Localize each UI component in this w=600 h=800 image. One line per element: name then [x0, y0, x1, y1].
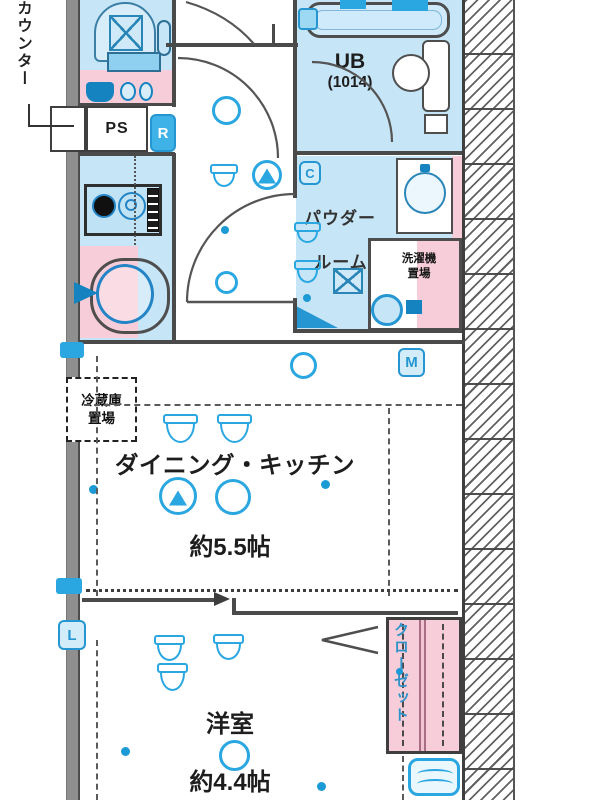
closet-dashed-below: [402, 756, 404, 800]
powder-door-arc: [187, 194, 295, 302]
floorplan-canvas: カウンター PS R UB (1014) C パウダー ルーム: [0, 0, 600, 800]
unit-bath-size: (1014): [300, 74, 400, 92]
vanity-bowl-icon: [404, 172, 446, 214]
bedroom-dot-icon: [121, 747, 130, 756]
wall-outlet2-icon: [56, 578, 82, 594]
toilet-lid-icon: [109, 15, 143, 51]
dining-dashed-top: [84, 404, 462, 406]
powder-mirror-icon: [333, 268, 363, 294]
bedroom-dot2-icon: [317, 782, 326, 791]
wall-entrance: [166, 43, 298, 47]
powder-door-wedge-icon: [296, 306, 338, 328]
wall-outlet-icon: [60, 342, 84, 358]
washer-space-line1: 洗濯機: [388, 252, 450, 267]
sink-faucet-icon: [74, 282, 98, 304]
hallway-light2-icon: [215, 271, 238, 294]
hall-light-icon: [212, 96, 241, 125]
sliding-door-arrow-icon: [214, 592, 230, 606]
dining-dashed-left: [96, 356, 98, 596]
kitchen-counter-dotted: [134, 156, 136, 252]
bath-step-icon: [424, 114, 448, 134]
exterior-hatched-wall: [462, 0, 515, 800]
bath-fixture-icon: [340, 0, 366, 9]
bedroom-downlight3-icon: [157, 663, 188, 692]
sliding-door-dotted-track: [86, 589, 458, 592]
closet-dot-icon: [396, 668, 403, 675]
refrigerator-mark-icon: R: [150, 114, 176, 152]
counter-niche: [50, 106, 86, 152]
powder-light2-icon: [294, 260, 321, 284]
ac-wave-1: [417, 769, 453, 779]
dining-downlight2-icon: [217, 414, 252, 444]
wall-toilet-bottom: [80, 103, 175, 106]
wall-kitchen-top: [80, 152, 175, 156]
powder-dot-icon: [303, 294, 311, 302]
hallway-light-icon: [210, 164, 238, 188]
fridge-space-line2: 置場: [88, 410, 115, 428]
bedroom-size: 約4.4帖: [155, 762, 305, 797]
dining-circle-icon: [215, 479, 251, 515]
closet-divider: [419, 620, 426, 751]
wall-powder-left-top: [293, 156, 297, 198]
wall-kitchen-right: [172, 153, 176, 343]
pipe-space-box: PS: [86, 106, 148, 152]
washer-space-line2: 置場: [388, 267, 450, 282]
dining-top-wall: [80, 340, 465, 344]
powder-light-icon: [294, 222, 321, 244]
dining-downlight-icon: [163, 414, 198, 444]
bedroom-dashed-left: [96, 640, 98, 800]
wall-ub-left: [293, 0, 297, 156]
sliding-door-chevron: [322, 627, 378, 653]
hallway-vent-icon: [252, 160, 282, 190]
sliding-door-panel-a: [82, 598, 214, 602]
hallway-dot-icon: [221, 226, 229, 234]
fridge-space-line1: 冷蔵庫: [81, 392, 122, 410]
stove-burner-dark-icon: [92, 194, 116, 218]
closet-dashed-2: [442, 624, 444, 746]
pipe-space-label: PS: [105, 120, 128, 138]
wall-door-stub: [272, 24, 275, 46]
dining-vent-icon: [159, 477, 197, 515]
unit-bath-name: UB: [300, 50, 400, 74]
fridge-space-box: 冷蔵庫 置場: [66, 377, 137, 442]
dining-dot2-icon: [321, 480, 330, 489]
toilet-capsule-icon: [157, 20, 171, 56]
c-mark-icon: C: [299, 161, 321, 185]
bedroom-downlight2-icon: [213, 634, 244, 661]
ac-wave-2: [417, 779, 453, 789]
washer-drum-icon: [371, 294, 403, 326]
wall-powder-left-bottom: [293, 298, 297, 332]
wall-ub-bottom: [293, 151, 462, 155]
air-conditioner-icon: [408, 758, 460, 796]
bedroom-name: 洋室: [170, 704, 290, 739]
bath-fixture2-icon: [392, 0, 428, 11]
closet-label: クローゼット: [390, 622, 411, 750]
wall-powder-bottom: [293, 329, 462, 333]
toilet-faucet-icon: [120, 82, 136, 101]
meter-mark-icon: M: [398, 348, 425, 377]
sink-bowl-icon: [96, 264, 154, 324]
bedroom-downlight-icon: [154, 635, 185, 662]
toilet-tank-icon: [107, 52, 161, 72]
sliding-door-stub: [232, 598, 236, 614]
dining-kitchen-name: ダイニング・キッチン: [80, 446, 390, 480]
toilet-cup-icon: [139, 82, 153, 101]
stove-burner-icon: [118, 192, 146, 220]
washer-valve-icon: [406, 300, 422, 314]
stove-grill-icon: [147, 188, 159, 232]
dining-kitchen-size: 約5.5帖: [150, 527, 310, 562]
dining-dashed-right: [388, 408, 390, 596]
bath-control-icon: [298, 8, 318, 30]
washer-space-label: 洗濯機 置場: [388, 252, 450, 282]
bathtub-icon: [306, 2, 450, 38]
l-mark-icon: L: [58, 620, 86, 650]
sliding-door-panel-b: [232, 611, 458, 615]
dining-ceiling-light-icon: [290, 352, 317, 379]
wall-toilet-right: [172, 0, 176, 107]
bathtub-inner-line: [314, 10, 442, 30]
toilet-sink-icon: [86, 82, 114, 102]
unit-bath-label: UB (1014): [300, 50, 400, 92]
vanity-faucet-icon: [420, 164, 430, 172]
entrance-door-arc: [186, 2, 254, 44]
bath-toilet-bowl-icon: [392, 54, 430, 92]
counter-label: カウンター: [12, 0, 34, 112]
